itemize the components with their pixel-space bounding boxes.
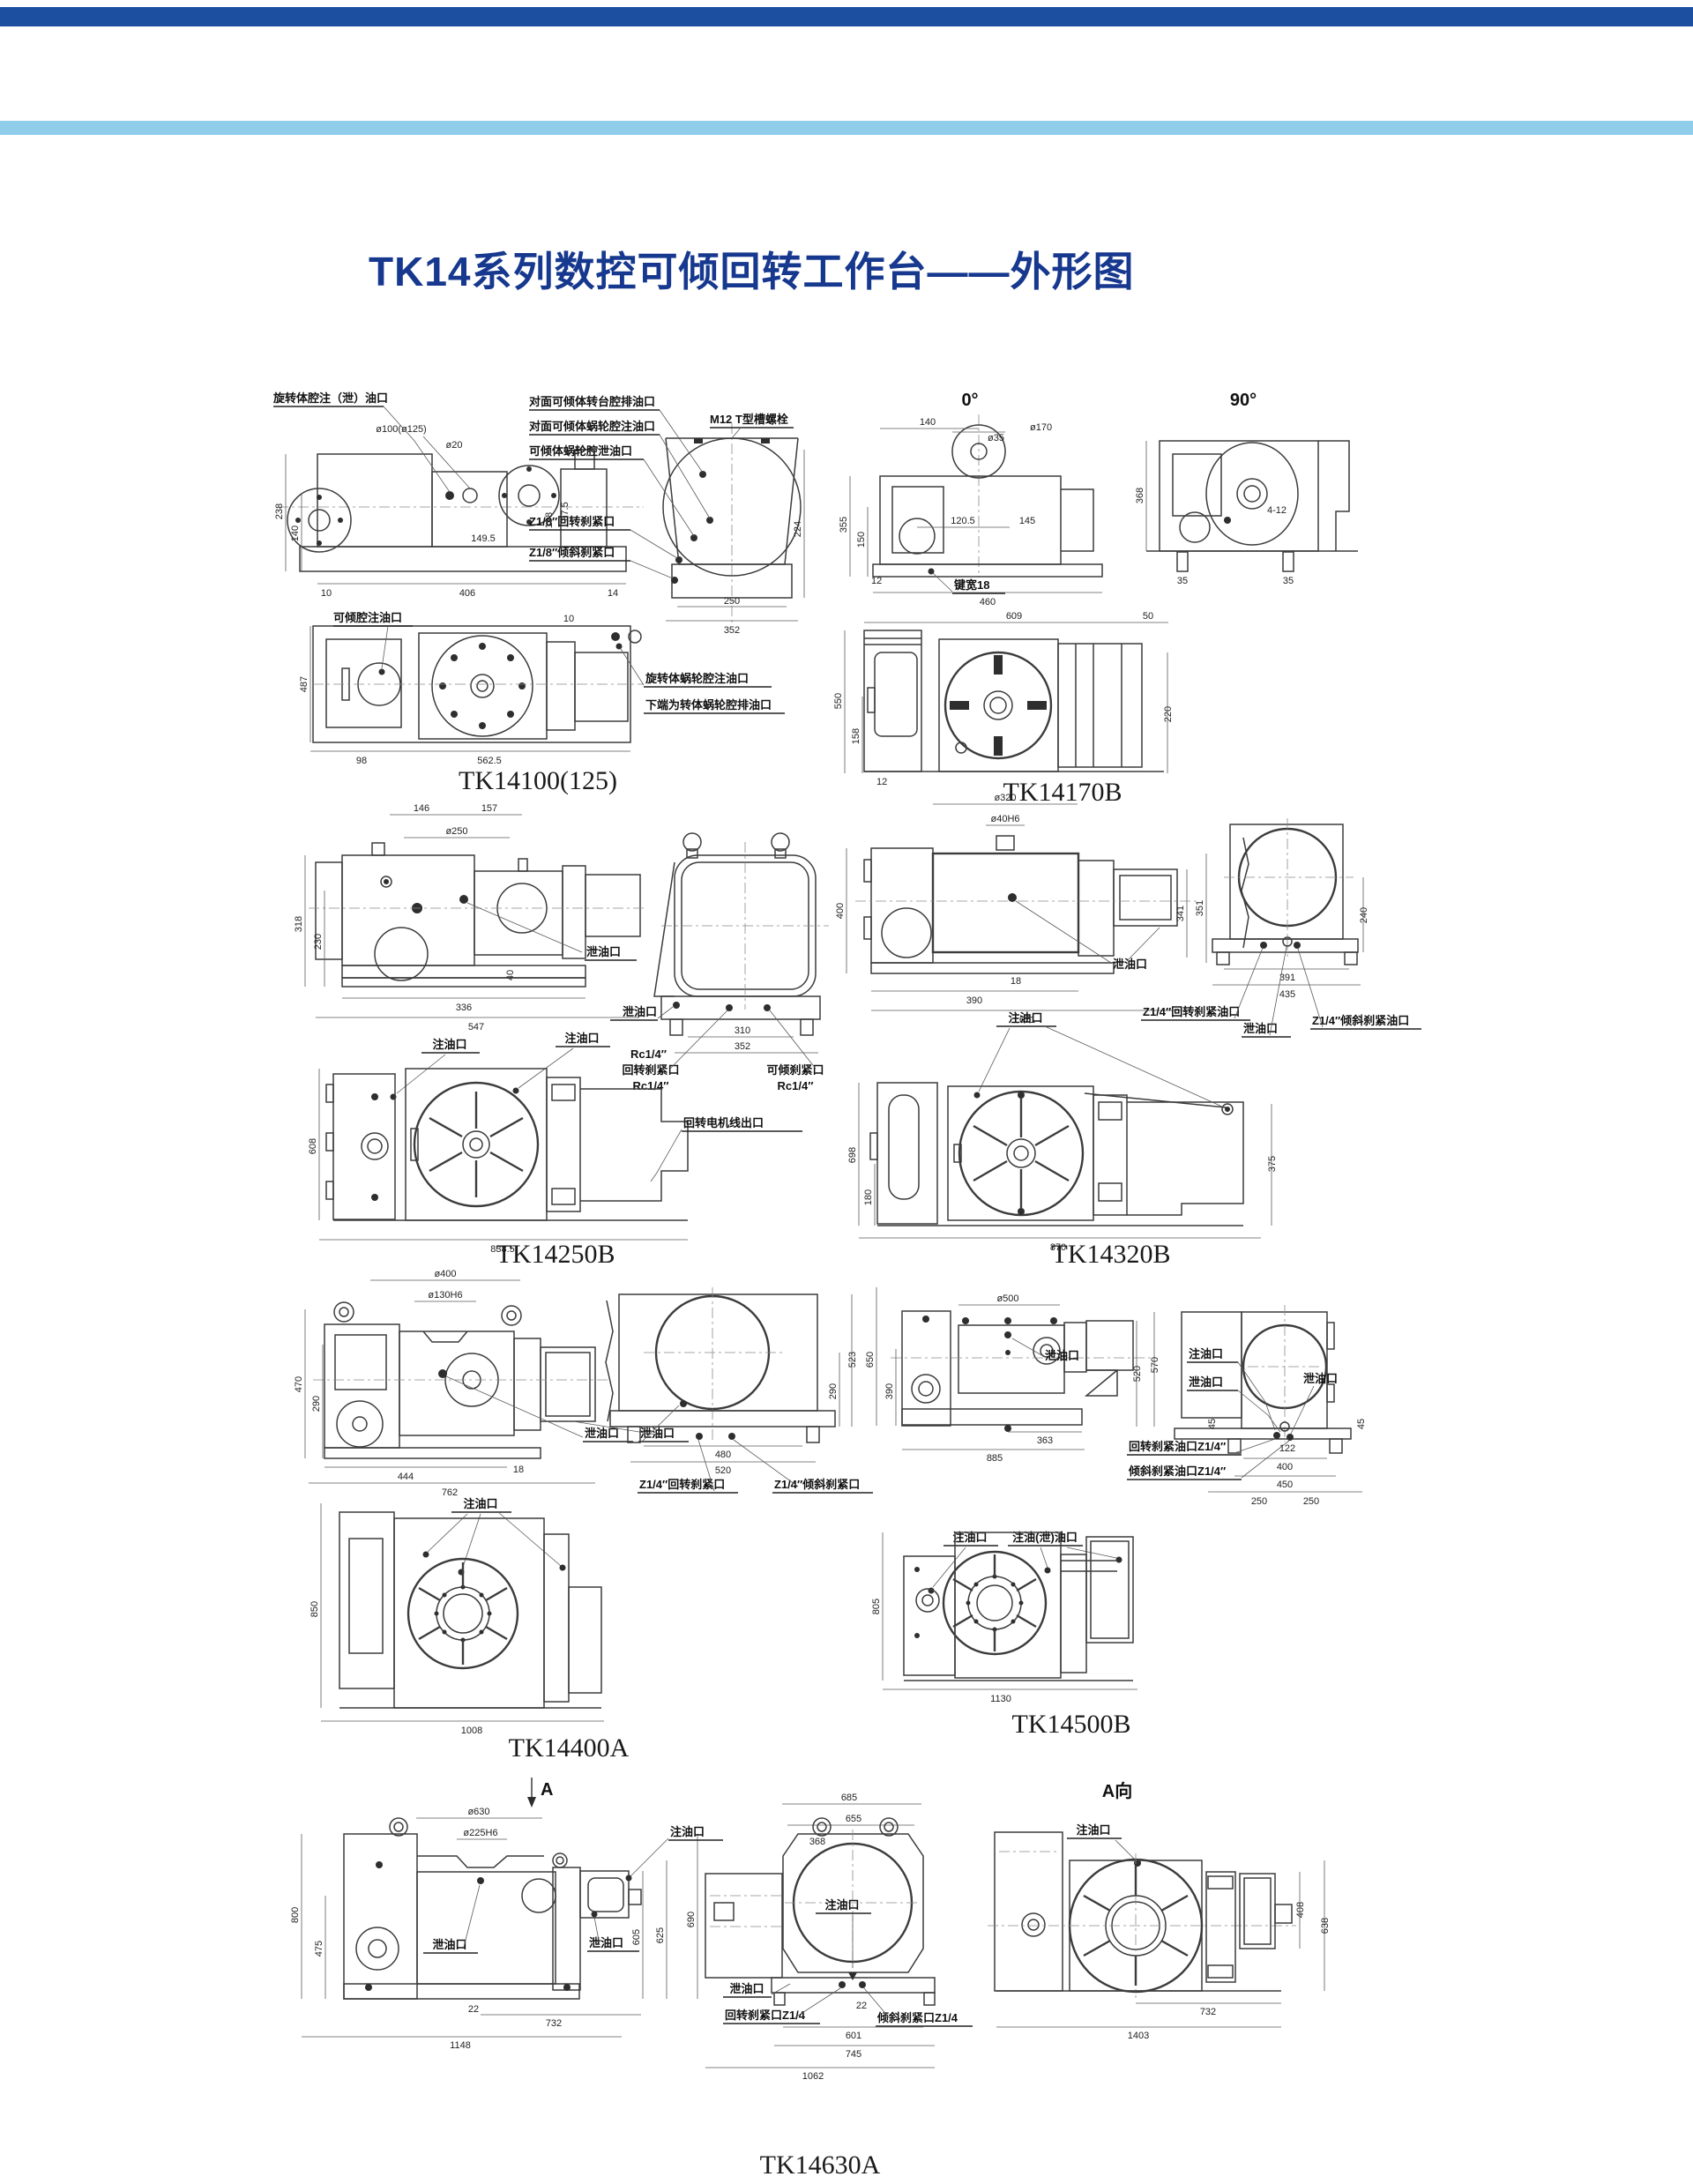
dim-label: ø20: [446, 440, 463, 451]
callout-label: 注油口: [564, 1032, 599, 1045]
dim-label: 609: [1006, 611, 1022, 622]
tk14320b-plan-view: 698 180 870 375: [847, 1026, 1278, 1253]
dim-label: 608: [308, 1138, 318, 1154]
dim-label: 605: [631, 1929, 642, 1945]
tk14250b-top-view: 146 157 ø250 泄油口 318 230: [294, 803, 644, 1032]
dim-label: 745: [846, 2049, 861, 2060]
tk14400a-front-view: 523 290 480 520 Z1/4″回转刹紧口 Z1/4″倾斜刹紧口: [606, 1287, 873, 1493]
tk14630a-front-view: 685 655 368 注油口 泄油口 回转刹紧口Z1/4 倾斜刹紧口Z1/4: [705, 1793, 973, 2082]
dim-label: 10: [563, 614, 574, 624]
callout-label: Z1/4″倾斜刹紧口: [774, 1478, 860, 1491]
callout-label: 注油口: [1008, 1011, 1042, 1025]
dim-label: 1008: [461, 1726, 482, 1736]
dim-label: 157: [481, 803, 497, 814]
callout-label: 泄油口: [432, 1938, 466, 1951]
dim-label: 850: [310, 1601, 320, 1617]
drawing-tk14500b: ø500 650 390 363 885 520 570: [864, 1261, 1490, 1759]
dim-label: 18: [513, 1465, 524, 1475]
dim-label: ø320: [994, 793, 1016, 803]
tk14250b-plan-view: 608 838.5 回转电机线出口: [308, 1069, 802, 1255]
dim-label: 290: [311, 1396, 322, 1412]
callout-label: 注油口: [670, 1825, 705, 1838]
dim-label: 180: [863, 1189, 874, 1205]
callout-label: Z1/8″回转刹紧口: [529, 515, 615, 528]
tk14100-callouts: 旋转体腔注（泄）油口 对面可倾体转台腔排油口 对面可倾体蜗轮腔注油口 可倾体蜗轮…: [272, 391, 794, 578]
drawing-tk14170b: 0° 140 ø170 ø35 355 150 120.5 145 12 460…: [829, 388, 1675, 811]
tk14100-plan-view: 487 98 562.5 可倾腔注油口 旋转体蜗轮腔注油口 下端为转体蜗轮腔排油…: [299, 611, 785, 766]
dim-label: 230: [313, 934, 324, 950]
callout-label: 泄油口: [589, 1936, 623, 1949]
dim-label: 250: [1251, 1496, 1267, 1507]
dim-label: 460: [980, 597, 996, 607]
dim-label: 363: [1037, 1435, 1053, 1446]
dim-label: 149.5: [471, 533, 496, 544]
dim-label: ø500: [996, 1293, 1018, 1304]
dim-label: 290: [828, 1383, 839, 1399]
dim-label: 547: [468, 1022, 484, 1032]
model-label: TK14630A: [760, 2150, 881, 2180]
catalog-page: TK14系列数控可倾回转工作台——外形图: [0, 0, 1693, 2184]
dim-label: 352: [735, 1041, 750, 1052]
view-label: 90°: [1230, 391, 1257, 410]
callout-label: 泄油口: [1189, 1375, 1223, 1389]
dim-label: 601: [846, 2031, 861, 2041]
dim-label: 650: [865, 1352, 876, 1368]
dim-label: 35: [1177, 576, 1188, 586]
dim-label: 435: [1279, 989, 1295, 1000]
callout-label: 泄油口: [585, 1427, 619, 1440]
dim-label: 655: [846, 1814, 861, 1824]
callout-label: 倾斜刹紧油口Z1/4″: [1128, 1465, 1226, 1478]
dim-label: 800: [290, 1907, 301, 1923]
dim-label: 487: [299, 676, 310, 692]
tk14630a-aview: A向 注油口 408 638 732 1403: [988, 1780, 1331, 2041]
model-label: TK14400A: [509, 1733, 630, 1763]
callout-label: 泄油口: [1113, 958, 1147, 971]
dim-label: 520: [1132, 1366, 1143, 1382]
callout-label: 回转刹紧口: [622, 1063, 679, 1077]
dim-label: 352: [724, 625, 740, 636]
dim-label: 1062: [802, 2071, 824, 2082]
dim-label: 470: [294, 1376, 304, 1392]
dim-label: ø225H6: [463, 1828, 497, 1838]
callout-label: 注油口: [824, 1898, 859, 1912]
dim-label: 690: [686, 1912, 697, 1927]
dim-label: 45: [1207, 1419, 1218, 1429]
callout-label: 注油口: [463, 1497, 497, 1510]
tk14170b-90deg-view: 90° 4-12 368 35 35: [1135, 391, 1358, 586]
dim-label: 158: [851, 728, 861, 744]
dim-label: 224: [793, 521, 803, 537]
tk14500b-plan-view: 注油口 注油(泄)油口 805: [871, 1531, 1137, 1704]
view-label: 0°: [961, 391, 978, 410]
callout-label: 回转刹紧口Z1/4: [725, 2009, 806, 2022]
dim-label: 250: [1303, 1496, 1319, 1507]
dim-label: 400: [835, 903, 846, 919]
dim-label: 368: [809, 1837, 825, 1847]
dim-label: 406: [459, 588, 475, 599]
dim-label: 550: [833, 693, 844, 709]
tk14320b-front-view: 240 391 435 Z1/4″回转刹紧油口 泄油口 Z1/4″倾斜刹紧油口: [1141, 818, 1421, 1037]
drawing-tk14630a: A ø630 ø225H6 800 475 605: [291, 1772, 1437, 2184]
dim-label: 140: [920, 417, 936, 428]
callout-label: 泄油口: [623, 1005, 657, 1018]
callout-label: 注油口: [1076, 1823, 1110, 1837]
dim-label: ø130H6: [428, 1290, 462, 1301]
callout-label: Rc1/4″: [778, 1079, 814, 1092]
dim-label: 98: [356, 756, 367, 766]
dim-label: ø170: [1030, 422, 1052, 433]
page-title: TK14系列数控可倾回转工作台——外形图: [369, 240, 1134, 298]
dim-label: 698: [847, 1147, 858, 1163]
drawing-tk14250b: 146 157 ø250 泄油口 318 230: [291, 794, 891, 1278]
dim-label: 120.5: [951, 516, 975, 526]
callout-label: 对面可倾体蜗轮腔注油口: [529, 420, 655, 433]
dim-label: 732: [546, 2018, 562, 2029]
dim-label: 523: [847, 1352, 858, 1368]
model-label: TK14100(125): [459, 766, 617, 795]
dim-label: 375: [1267, 1156, 1278, 1172]
callout-label: 可倾刹紧口: [766, 1063, 824, 1077]
callout-label: 4-12: [1267, 505, 1287, 516]
dim-label: 570: [1150, 1357, 1160, 1373]
dim-label: 122: [1279, 1443, 1295, 1454]
tk14170b-0deg-view: 0° 140 ø170 ø35 355 150 120.5 145 12 460…: [839, 391, 1102, 607]
tk14500b-top-view: ø500 650 390 363 885 520 570: [865, 1287, 1160, 1464]
dim-label: 450: [1277, 1480, 1293, 1490]
dim-label: 625: [655, 1927, 666, 1943]
dim-label: ø250: [445, 826, 467, 837]
light-blue-stripe: [0, 121, 1693, 135]
dim-label: 14: [608, 588, 618, 599]
callout-label: M12 T型槽螺栓: [710, 413, 788, 426]
dim-label: 762: [442, 1487, 458, 1498]
callout-label: 旋转体蜗轮腔注油口: [645, 672, 749, 685]
dim-label: 368: [1135, 488, 1145, 503]
callout-label: Z1/4″倾斜刹紧油口: [1312, 1014, 1409, 1027]
dim-label: 10: [321, 588, 332, 599]
dim-label: 145: [1019, 516, 1035, 526]
dim-label: 318: [294, 916, 304, 932]
dim-label: 250: [724, 596, 740, 607]
view-label: A: [541, 1780, 553, 1800]
callout-label: 泄油口: [586, 945, 621, 958]
dim-label: 562.5: [477, 756, 502, 766]
dim-label: 400: [1277, 1462, 1293, 1472]
dim-label: 1403: [1128, 2031, 1149, 2041]
dim-label: 390: [966, 995, 982, 1006]
dim-label: 50: [1143, 611, 1153, 622]
dim-label: 240: [1359, 907, 1369, 923]
dim-label: 390: [884, 1383, 895, 1399]
dim-label: 146: [414, 803, 429, 814]
dim-label: 685: [841, 1793, 857, 1803]
model-label: TK14500B: [1012, 1710, 1131, 1739]
dim-label: 805: [871, 1599, 882, 1614]
tk14400a-plan-view: 注油口 850 1008: [310, 1497, 604, 1736]
dim-label: 45: [1356, 1419, 1367, 1429]
tk14630a-side-view: A ø630 ø225H6 800 475 605: [290, 1778, 723, 2051]
dim-label: 12: [871, 576, 882, 586]
dim-label: 238: [274, 503, 285, 519]
dim-label: ø400: [434, 1269, 456, 1279]
dim-label: 310: [735, 1025, 750, 1036]
tk14100-section-view: [663, 423, 801, 624]
callout-label: 泄油口: [1243, 1022, 1278, 1035]
callout-label: 注油口: [432, 1038, 466, 1051]
dim-label: 732: [1200, 2007, 1216, 2017]
dim-label: 40: [505, 970, 516, 980]
dim-label: 220: [1163, 706, 1174, 722]
callout-label: 泄油口: [1303, 1372, 1338, 1385]
dim-label: 18: [1011, 976, 1021, 987]
callout-label: 回转电机线出口: [683, 1116, 764, 1129]
dim-label: 408: [1295, 1902, 1306, 1918]
callout-label: 可倾体蜗轮腔泄油口: [529, 444, 632, 458]
callout-label: Rc1/4″: [633, 1079, 669, 1092]
callout-label: Z1/4″回转刹紧油口: [1143, 1005, 1240, 1018]
callout-label: 旋转体腔注（泄）油口: [272, 391, 388, 405]
dim-label: 341: [1175, 906, 1186, 921]
view-label: A向: [1102, 1780, 1132, 1801]
drawing-tk14400a: ø400 ø130H6 470 290 444 18 762 泄: [291, 1261, 899, 1768]
callout-label: Rc1/4″: [630, 1047, 667, 1061]
dim-label: 1148: [450, 2040, 471, 2051]
callout-label: 注油口: [1189, 1347, 1223, 1360]
tk14170b-plan-view: 609 50 550 158 12 220: [833, 611, 1174, 787]
callout-label: 下端为转体蜗轮腔排油口: [645, 698, 772, 712]
tk14400a-top-view: ø400 ø130H6 470 290 444 18 762 泄: [294, 1269, 689, 1498]
dim-label: 475: [314, 1941, 324, 1957]
callout-label: 回转刹紧油口Z1/4″: [1129, 1440, 1226, 1453]
dim-label: 885: [987, 1453, 1003, 1464]
dim-label: 351: [1195, 900, 1205, 916]
tk14500b-front-view: 注油口 泄油口 泄油口 回转刹紧油口Z1/4″ 倾斜刹紧油口Z1/4″ 45 4…: [1127, 1305, 1367, 1507]
dim-label: 1130: [990, 1694, 1011, 1704]
dim-label: 638: [1320, 1918, 1331, 1934]
dim-label: 140: [290, 526, 301, 541]
dim-label: ø35: [988, 433, 1004, 444]
dim-label: 150: [856, 532, 867, 548]
tk14320b-top-view: ø320 ø40H6 400 341 351 18 390 671 泄油口: [835, 793, 1206, 1026]
dim-label: 391: [1279, 973, 1295, 983]
callout-label: 可倾腔注油口: [333, 611, 402, 624]
callout-label: 键宽18: [953, 578, 989, 592]
dim-label: ø630: [467, 1807, 489, 1817]
callout-label: 泄油口: [1045, 1349, 1079, 1362]
callout-label: Z1/8″倾斜刹紧口: [529, 546, 615, 559]
callout-label: 倾斜刹紧口Z1/4: [876, 2011, 958, 2024]
dim-label: ø40H6: [990, 814, 1019, 824]
dim-label: 520: [715, 1465, 731, 1476]
callout-label: 泄油口: [729, 1982, 764, 1995]
dim-label: 444: [398, 1472, 414, 1482]
dim-label: 22: [856, 2001, 867, 2011]
top-blue-bar: [0, 7, 1693, 26]
dim-label: 35: [1283, 576, 1294, 586]
dim-label: 336: [456, 1003, 472, 1013]
drawing-tk14320b: ø320 ø40H6 400 341 351 18 390 671 泄油口: [829, 785, 1481, 1270]
callout-label: 对面可倾体转台腔排油口: [529, 395, 655, 408]
dim-label: 355: [839, 517, 849, 533]
dim-label: 480: [715, 1450, 731, 1460]
dim-label: 22: [468, 2004, 479, 2015]
